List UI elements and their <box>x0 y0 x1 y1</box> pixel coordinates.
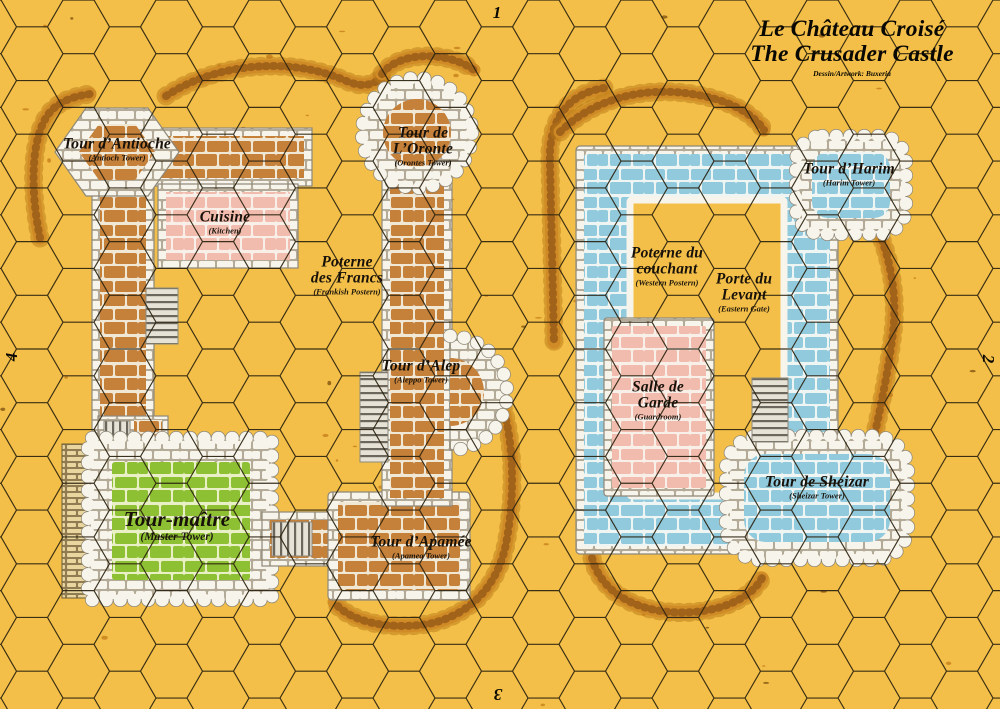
location-name-french: Tour d’Harim <box>803 161 895 177</box>
location-name-french: Tour-maître <box>124 509 230 530</box>
location-name-english: (Sheizar Tower) <box>765 491 869 500</box>
location-label-alep: Tour d’Alep (Aleppo Tower) <box>382 358 461 383</box>
map-credit: Dessin/Artwork: Buxeria <box>714 69 990 78</box>
location-name-english: (Guardroom) <box>632 412 684 421</box>
location-label-poterne-couchant: Poterne du couchant (Western Postern) <box>631 245 703 286</box>
courtyard-stairs <box>752 378 788 442</box>
location-label-cuisine: Cuisine (Kitchen) <box>200 209 251 234</box>
location-name-french: Porte du Levant <box>716 271 772 303</box>
location-name-english: (Apamea Tower) <box>370 551 472 560</box>
central-corridor-floor <box>390 184 444 498</box>
location-name-english: (Aleppo Tower) <box>382 375 461 384</box>
title-english: The Crusader Castle <box>714 42 990 67</box>
location-name-french: Poterne des Francs <box>311 254 383 286</box>
location-label-harim: Tour d’Harim (Harim Tower) <box>803 161 895 186</box>
location-label-apamee: Tour d’Apamée (Apamea Tower) <box>370 534 472 559</box>
location-name-english: (Eastern Gate) <box>716 304 772 313</box>
map-title: Le Château Croisé The Crusader Castle De… <box>714 17 990 78</box>
crusader-castle-map: Le Château Croisé The Crusader Castle De… <box>0 0 1000 709</box>
location-name-english: (Harim Tower) <box>803 178 895 187</box>
location-label-sheizar: Tour de Sheizar (Sheizar Tower) <box>765 474 869 499</box>
location-label-antioche: Tour d’Antioche (Antioch Tower) <box>63 136 171 161</box>
location-label-porte-levant: Porte du Levant (Eastern Gate) <box>716 271 772 312</box>
map-edge-number-1: 1 <box>493 3 502 23</box>
map-edge-number-2: 2 <box>978 355 998 364</box>
location-name-english: (Western Postern) <box>631 278 703 287</box>
location-name-english: (Master Tower) <box>124 531 230 543</box>
location-name-french: Tour d’Antioche <box>63 136 171 152</box>
location-name-french: Cuisine <box>200 209 251 225</box>
location-name-french: Tour d’Apamée <box>370 534 472 550</box>
location-name-english: (Antioch Tower) <box>63 153 171 162</box>
location-label-tour-maitre: Tour-maître (Master Tower) <box>124 509 230 543</box>
map-edge-number-4: 4 <box>2 353 22 362</box>
location-label-poterne-francs: Poterne des Francs (Frankish Postern) <box>311 254 383 295</box>
location-name-french: Tour d’Alep <box>382 358 461 374</box>
location-name-english: (Kitchen) <box>200 226 251 235</box>
location-label-oronte: Tour de L’Oronte (Orontes Tower) <box>393 125 453 166</box>
location-name-french: Tour de Sheizar <box>765 474 869 490</box>
map-edge-number-3: 3 <box>494 684 503 704</box>
location-name-english: (Frankish Postern) <box>311 287 383 296</box>
location-name-french: Tour de L’Oronte <box>393 125 453 157</box>
south-corridor-stairs <box>272 522 312 556</box>
map-artwork <box>0 0 1000 709</box>
location-name-english: (Orontes Tower) <box>393 158 453 167</box>
west-stairs <box>146 288 178 344</box>
location-name-french: Salle de Garde <box>632 379 684 411</box>
title-french: Le Château Croisé <box>714 17 990 42</box>
location-name-french: Poterne du couchant <box>631 245 703 277</box>
location-label-salle-garde: Salle de Garde (Guardroom) <box>632 379 684 420</box>
